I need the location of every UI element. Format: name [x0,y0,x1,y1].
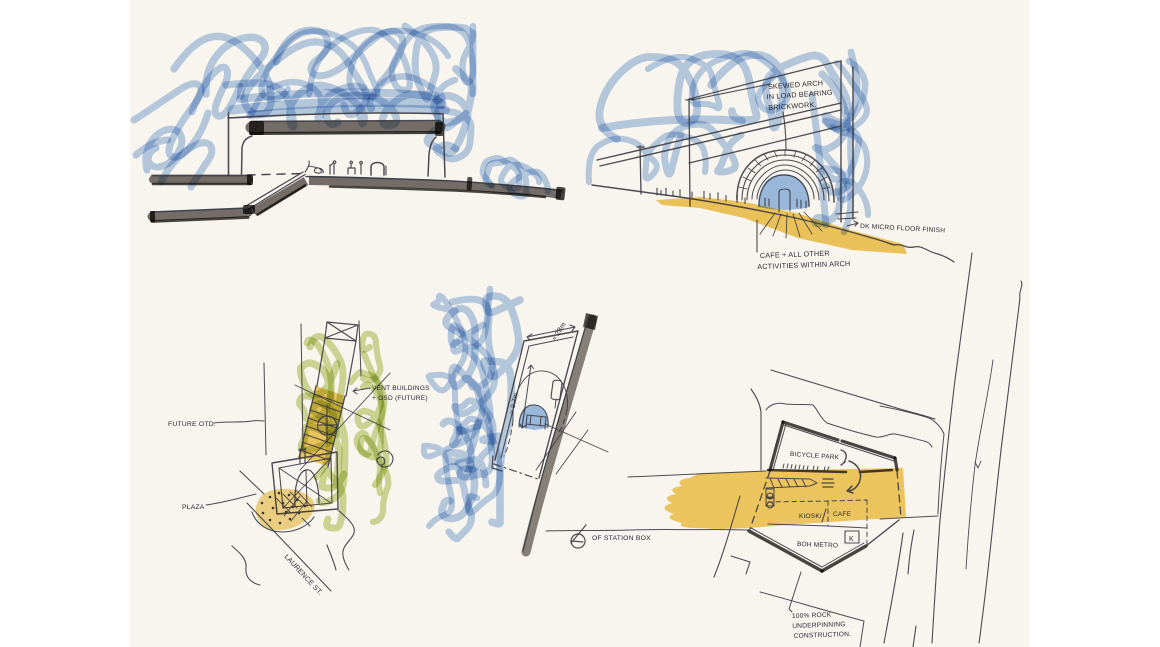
svg-text:PLAZA: PLAZA [182,504,205,511]
svg-text:OF STATION BOX: OF STATION BOX [592,535,651,542]
svg-text:100% ROCK: 100% ROCK [792,612,832,620]
svg-text:VENT BUILDINGS: VENT BUILDINGS [372,385,430,392]
svg-text:FUTURE OTD.: FUTURE OTD. [168,421,216,428]
svg-text:CAFE: CAFE [833,511,852,518]
svg-text:K: K [849,536,854,543]
svg-text:BOH METRO: BOH METRO [797,541,838,549]
svg-text:KIOSK/: KIOSK/ [799,513,822,520]
svg-text:+ OSD (FUTURE): + OSD (FUTURE) [372,395,428,402]
